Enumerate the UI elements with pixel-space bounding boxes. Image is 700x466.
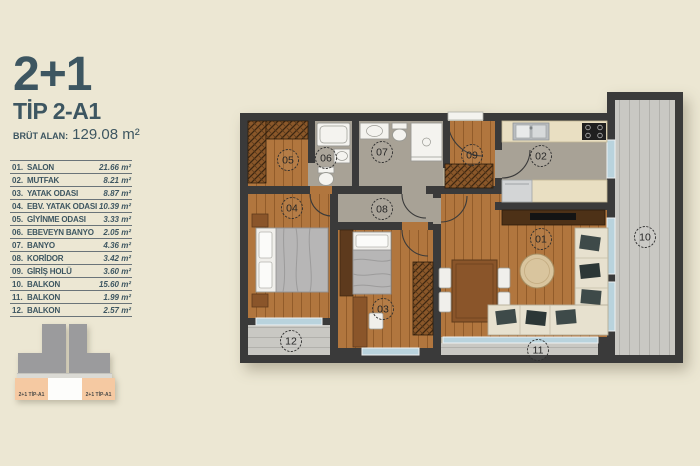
dining-chair	[439, 268, 451, 288]
room-badge-ebv-yatak-odasi: 04	[282, 198, 303, 219]
room-badge-banyo: 07	[372, 142, 393, 163]
room-badge-yatak-odasi: 03	[373, 299, 394, 320]
keyplan-unit-left: 2+1 TİP-A1	[15, 378, 48, 400]
pillow	[259, 232, 272, 258]
svg-text:06: 06	[320, 153, 332, 165]
legend-row: 12.BALKON2.57 m²	[10, 304, 132, 317]
toilet	[393, 129, 407, 141]
legend-room-name: GİRİŞ HOLÜ	[27, 267, 103, 276]
gross-area-label: BRÜT ALAN:	[13, 131, 68, 141]
legend-room-name: GİYİNME ODASI	[27, 215, 103, 224]
legend-room-no: 04.	[12, 202, 27, 211]
legend-room-no: 01.	[12, 163, 27, 172]
toilet	[319, 173, 334, 186]
coffee-table	[520, 254, 554, 288]
legend-room-name: SALON	[27, 163, 99, 172]
gross-area-value: 129.08 m²	[72, 126, 140, 143]
room-badge-ebeveyn-banyo: 06	[316, 148, 337, 169]
svg-text:01: 01	[535, 234, 547, 246]
legend-room-no: 05.	[12, 215, 27, 224]
svg-text:12: 12	[285, 336, 297, 348]
entry-closet	[445, 164, 493, 188]
keyplan-block	[18, 353, 42, 373]
cushion	[555, 309, 576, 325]
svg-text:08: 08	[376, 204, 388, 216]
key-plan: 2+1 TİP-A1 2+1 TİP-A1	[15, 322, 115, 402]
legend-room-area: 2.57 m²	[103, 306, 131, 315]
legend-room-no: 12.	[12, 306, 27, 315]
legend-row: 02.MUTFAK8.21 m²	[10, 174, 132, 187]
svg-text:05: 05	[282, 155, 294, 167]
bedroom-wardrobe	[413, 262, 433, 335]
legend-room-name: EBEVEYN BANYO	[27, 228, 103, 237]
legend-room-name: KORİDOR	[27, 254, 103, 263]
room-badge-balkon-12: 12	[281, 331, 302, 352]
legend-room-name: BALKON	[27, 280, 99, 289]
balcony-11-floor	[437, 343, 600, 355]
keyplan-unit-left-label: 2+1 TİP-A1	[19, 392, 45, 400]
keyplan-core	[48, 378, 82, 400]
room-badge-mutfak: 02	[531, 146, 552, 167]
legend-room-area: 15.60 m²	[99, 280, 131, 289]
legend-row: 03.YATAK ODASI8.87 m²	[10, 187, 132, 200]
info-panel: 2+1 TİP 2-A1 BRÜT ALAN: 129.08 m²	[13, 52, 223, 143]
legend-room-area: 1.99 m²	[103, 293, 131, 302]
stove	[582, 123, 606, 140]
legend-room-no: 11.	[12, 293, 27, 302]
svg-text:04: 04	[286, 203, 298, 215]
legend-room-area: 8.87 m²	[103, 189, 131, 198]
legend-room-area: 3.42 m²	[103, 254, 131, 263]
legend-room-no: 08.	[12, 254, 27, 263]
legend-room-area: 8.21 m²	[103, 176, 131, 185]
dining-chair	[439, 292, 451, 312]
toilet-tank	[392, 123, 407, 129]
legend-room-name: EBV. YATAK ODASI	[27, 202, 99, 211]
desk	[353, 297, 367, 347]
page: 2+1 TİP 2-A1 BRÜT ALAN: 129.08 m² 01.SAL…	[0, 0, 700, 466]
room-badge-giris-holu: 09	[462, 145, 483, 166]
dressing-wardrobe	[248, 121, 266, 183]
gross-area: BRÜT ALAN: 129.08 m²	[13, 126, 223, 143]
legend-room-area: 3.60 m²	[103, 267, 131, 276]
page-title: 2+1	[13, 52, 223, 98]
legend-row: 06.EBEVEYN BANYO2.05 m²	[10, 226, 132, 239]
legend-row: 10.BALKON15.60 m²	[10, 278, 132, 291]
cushion	[579, 235, 601, 252]
legend-row: 04.EBV. YATAK ODASI10.39 m²	[10, 200, 132, 213]
shower	[411, 123, 442, 161]
room-badge-koridor: 08	[372, 199, 393, 220]
floor-plan-drawing: 01 02 03 04 05 06 07 08 09 10 11 12	[230, 78, 685, 368]
entrance-sill	[448, 112, 483, 120]
room-badge-salon: 01	[531, 229, 552, 250]
pillow	[356, 235, 388, 247]
duvet	[353, 250, 391, 294]
legend-room-no: 07.	[12, 241, 27, 250]
svg-text:03: 03	[377, 304, 389, 316]
legend-row: 05.GİYİNME ODASI3.33 m²	[10, 213, 132, 226]
cushion	[580, 289, 601, 305]
nightstand	[252, 294, 268, 307]
legend-room-no: 02.	[12, 176, 27, 185]
shelf	[340, 230, 353, 296]
svg-text:07: 07	[376, 147, 388, 159]
pillow	[259, 262, 272, 288]
cushion	[579, 263, 600, 279]
legend-row: 08.KORİDOR3.42 m²	[10, 252, 132, 265]
dressing-wardrobe	[266, 121, 308, 139]
svg-text:09: 09	[466, 150, 478, 162]
legend-room-area: 21.66 m²	[99, 163, 131, 172]
tv	[530, 213, 576, 220]
legend-room-area: 2.05 m²	[103, 228, 131, 237]
legend-room-area: 4.36 m²	[103, 241, 131, 250]
legend-room-name: YATAK ODASI	[27, 189, 103, 198]
legend-room-name: MUTFAK	[27, 176, 103, 185]
svg-text:02: 02	[535, 151, 547, 163]
legend-room-no: 03.	[12, 189, 27, 198]
floor-plan: 01 02 03 04 05 06 07 08 09 10 11 12	[230, 78, 685, 368]
legend-row: 07.BANYO4.36 m²	[10, 239, 132, 252]
legend-room-name: BALKON	[27, 306, 103, 315]
svg-text:10: 10	[639, 232, 651, 244]
legend-room-no: 06.	[12, 228, 27, 237]
legend-room-no: 10.	[12, 280, 27, 289]
svg-text:11: 11	[533, 345, 544, 357]
room-badge-giyinme-odasi: 05	[278, 150, 299, 171]
room-badge-balkon-10: 10	[635, 227, 656, 248]
legend-room-no: 09.	[12, 267, 27, 276]
cushion	[525, 310, 546, 326]
legend-room-name: BANYO	[27, 241, 103, 250]
keyplan-unit-right-label: 2+1 TİP-A1	[86, 392, 112, 400]
legend-row: 11.BALKON1.99 m²	[10, 291, 132, 304]
keyplan-tower	[42, 324, 66, 373]
cushion	[495, 309, 517, 325]
legend-room-area: 10.39 m²	[99, 202, 131, 211]
room-badge-balkon-11: 11	[528, 340, 549, 361]
dining-chair	[498, 268, 510, 288]
legend-row: 09.GİRİŞ HOLÜ3.60 m²	[10, 265, 132, 278]
dishwasher	[502, 180, 532, 202]
unit-type-label: TİP 2-A1	[13, 100, 223, 123]
nightstand	[252, 214, 268, 227]
legend-room-area: 3.33 m²	[103, 215, 131, 224]
keyplan-block	[87, 353, 110, 373]
legend-room-name: BALKON	[27, 293, 103, 302]
keyplan-tower	[69, 324, 87, 373]
room-legend: 01.SALON21.66 m² 02.MUTFAK8.21 m² 03.YAT…	[10, 160, 132, 317]
keyplan-unit-right: 2+1 TİP-A1	[82, 378, 115, 400]
legend-row: 01.SALON21.66 m²	[10, 161, 132, 174]
